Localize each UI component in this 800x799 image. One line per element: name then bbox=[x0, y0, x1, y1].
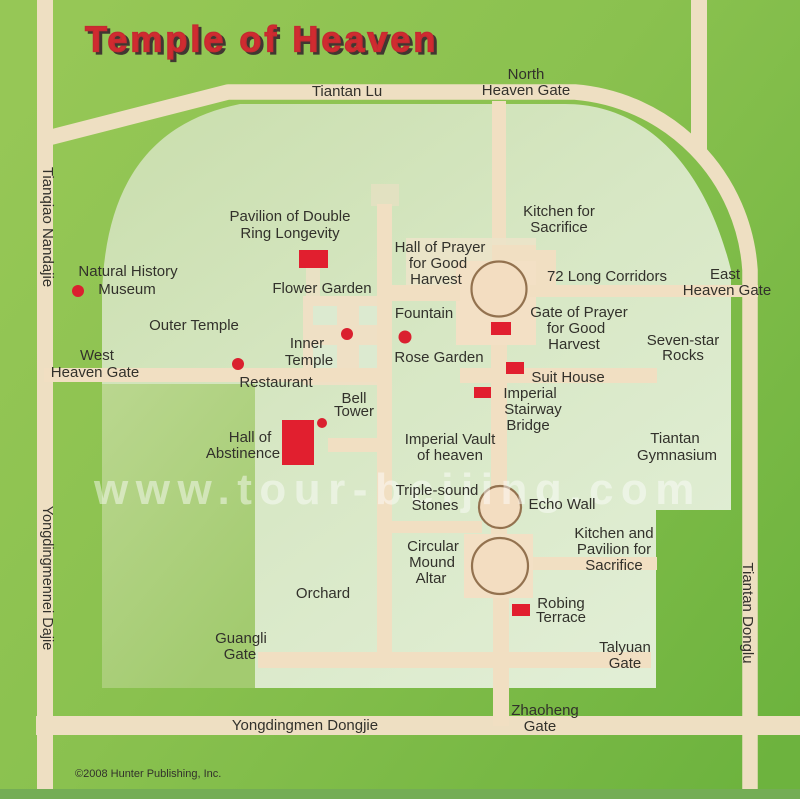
svg-text:Harvest: Harvest bbox=[548, 336, 601, 353]
svg-text:Yongdingmen Dongjie: Yongdingmen Dongjie bbox=[232, 717, 378, 734]
svg-text:Kitchen and: Kitchen and bbox=[574, 525, 653, 542]
svg-text:Mound: Mound bbox=[409, 554, 455, 571]
svg-text:Gate: Gate bbox=[224, 646, 257, 663]
svg-text:Gate: Gate bbox=[524, 718, 557, 735]
svg-text:Circular: Circular bbox=[407, 538, 459, 555]
svg-text:Tiantan: Tiantan bbox=[650, 430, 699, 447]
svg-text:Ring Longevity: Ring Longevity bbox=[240, 225, 340, 242]
svg-text:Heaven Gate: Heaven Gate bbox=[683, 282, 771, 299]
svg-text:Heaven Gate: Heaven Gate bbox=[482, 82, 570, 99]
svg-text:Tianqiao Nandajie: Tianqiao Nandajie bbox=[39, 167, 56, 287]
svg-text:Fountain: Fountain bbox=[395, 305, 453, 322]
svg-text:Temple of Heaven: Temple of Heaven bbox=[85, 19, 438, 60]
svg-text:Abstinence: Abstinence bbox=[206, 445, 280, 462]
svg-text:Rose Garden: Rose Garden bbox=[394, 349, 483, 366]
svg-text:Bridge: Bridge bbox=[506, 417, 549, 434]
svg-text:72 Long Corridors: 72 Long Corridors bbox=[547, 268, 667, 285]
svg-text:Hall of: Hall of bbox=[229, 429, 272, 446]
svg-text:Rocks: Rocks bbox=[662, 347, 704, 364]
svg-text:Imperial Vault: Imperial Vault bbox=[405, 431, 496, 448]
svg-text:Suit House: Suit House bbox=[531, 369, 604, 386]
svg-text:Heaven Gate: Heaven Gate bbox=[51, 364, 139, 381]
svg-text:Gymnasium: Gymnasium bbox=[637, 447, 717, 464]
svg-text:Inner: Inner bbox=[290, 335, 324, 352]
svg-text:Outer Temple: Outer Temple bbox=[149, 317, 239, 334]
svg-text:Orchard: Orchard bbox=[296, 585, 350, 602]
svg-text:Guangli: Guangli bbox=[215, 630, 267, 647]
svg-text:Kitchen for: Kitchen for bbox=[523, 203, 595, 220]
svg-text:Restaurant: Restaurant bbox=[239, 374, 313, 391]
svg-text:of heaven: of heaven bbox=[417, 447, 483, 464]
svg-text:for Good: for Good bbox=[547, 320, 605, 337]
svg-text:Echo Wall: Echo Wall bbox=[529, 496, 596, 513]
svg-text:East: East bbox=[710, 266, 741, 283]
svg-text:Tiantan Lu: Tiantan Lu bbox=[312, 83, 382, 100]
svg-text:Natural History: Natural History bbox=[78, 263, 178, 280]
svg-text:Stairway: Stairway bbox=[504, 401, 562, 418]
svg-text:Yongdingmennei Dajie: Yongdingmennei Dajie bbox=[39, 506, 55, 651]
svg-text:Stones: Stones bbox=[412, 497, 459, 514]
svg-text:West: West bbox=[80, 347, 115, 364]
svg-text:Terrace: Terrace bbox=[536, 609, 586, 626]
svg-text:Tower: Tower bbox=[334, 403, 374, 420]
svg-text:Harvest: Harvest bbox=[410, 271, 463, 288]
svg-text:for Good: for Good bbox=[409, 255, 467, 272]
svg-text:Talyuan: Talyuan bbox=[599, 639, 651, 656]
svg-text:Altar: Altar bbox=[416, 570, 447, 587]
svg-text:Zhaoheng: Zhaoheng bbox=[511, 702, 579, 719]
svg-text:Imperial: Imperial bbox=[503, 385, 556, 402]
svg-text:Sacrifice: Sacrifice bbox=[530, 219, 588, 236]
svg-text:Gate of Prayer: Gate of Prayer bbox=[530, 304, 628, 321]
svg-text:Tiantan Donglu: Tiantan Donglu bbox=[739, 562, 756, 663]
svg-text:Gate: Gate bbox=[609, 655, 642, 672]
svg-text:Pavilion for: Pavilion for bbox=[577, 541, 651, 558]
svg-text:©2008 Hunter Publishing, Inc.: ©2008 Hunter Publishing, Inc. bbox=[75, 768, 221, 780]
svg-text:Flower Garden: Flower Garden bbox=[272, 280, 371, 297]
svg-text:Temple: Temple bbox=[285, 352, 333, 369]
svg-text:Pavilion of Double: Pavilion of Double bbox=[230, 208, 351, 225]
svg-text:Hall of Prayer: Hall of Prayer bbox=[395, 239, 486, 256]
svg-text:Museum: Museum bbox=[98, 281, 156, 298]
svg-text:North: North bbox=[508, 66, 545, 83]
svg-text:Sacrifice: Sacrifice bbox=[585, 557, 643, 574]
